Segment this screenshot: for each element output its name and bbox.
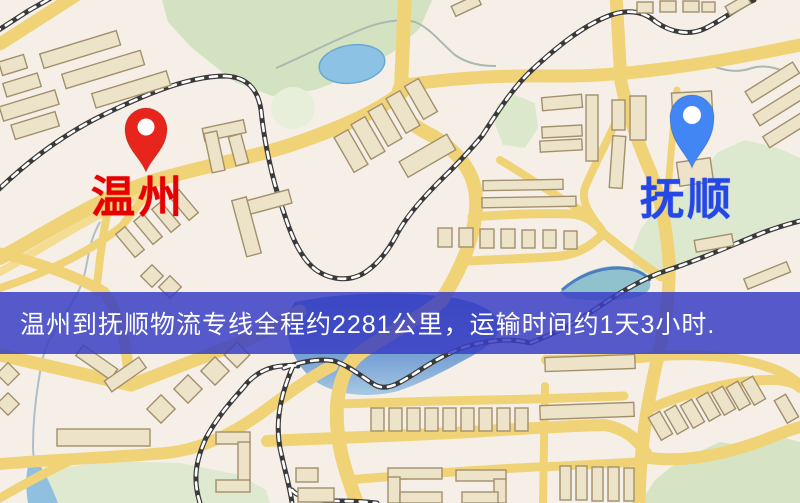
banner-text: 温州到抚顺物流专线全程约2281公里，运输时间约1天3小时.	[0, 305, 715, 341]
origin-pin-icon[interactable]	[125, 108, 167, 172]
info-banner: 温州到抚顺物流专线全程约2281公里，运输时间约1天3小时.	[0, 292, 800, 354]
map-canvas	[0, 0, 800, 503]
origin-label: 温州	[91, 176, 185, 220]
destination-pin-icon[interactable]	[670, 95, 714, 168]
map-view[interactable]: 温州 抚顺 温州到抚顺物流专线全程约2281公里，运输时间约1天3小时.	[0, 0, 800, 503]
destination-label: 抚顺	[640, 178, 734, 222]
